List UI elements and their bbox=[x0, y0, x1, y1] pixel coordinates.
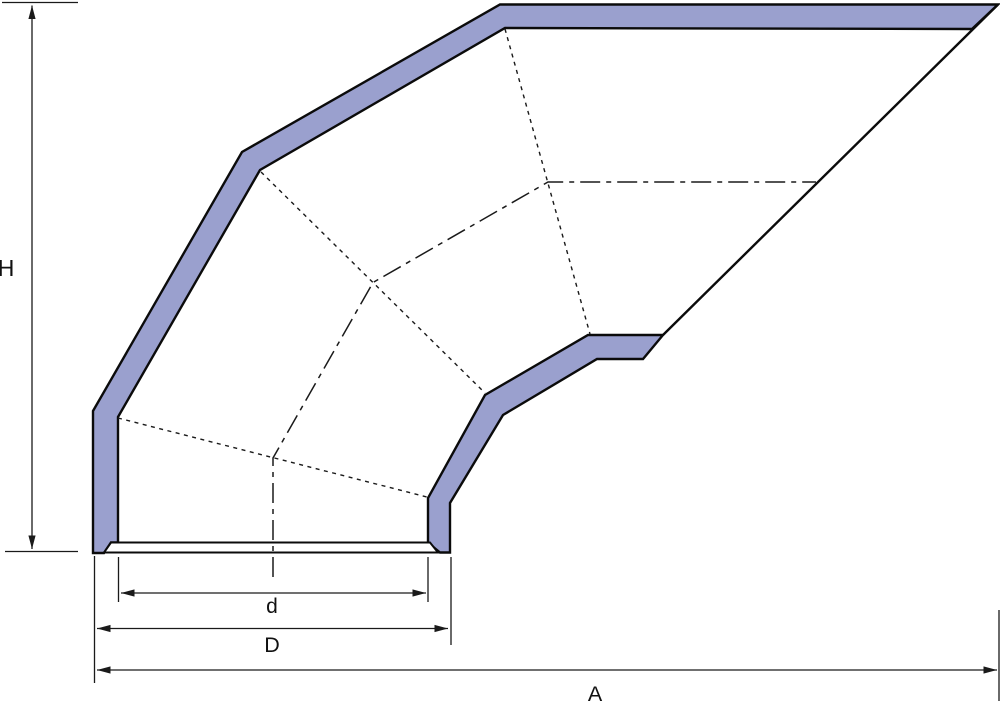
hood-right-outer-edge-line bbox=[663, 5, 998, 336]
technical-drawing-page: HdDA bbox=[0, 0, 1000, 702]
gore-joint-2-hidden-line bbox=[261, 172, 485, 393]
label-outer-diameter-D: D bbox=[264, 633, 280, 657]
hood-right-wall-band bbox=[428, 335, 663, 553]
hood-left-and-top-wall-band bbox=[93, 5, 998, 554]
label-height-H: H bbox=[0, 255, 14, 281]
label-overall-width-A: A bbox=[588, 682, 603, 702]
base-collar-flange bbox=[104, 543, 438, 553]
duct-elbow-drawing: HdDA bbox=[0, 0, 1000, 702]
label-inner-diameter-d: d bbox=[266, 595, 278, 618]
